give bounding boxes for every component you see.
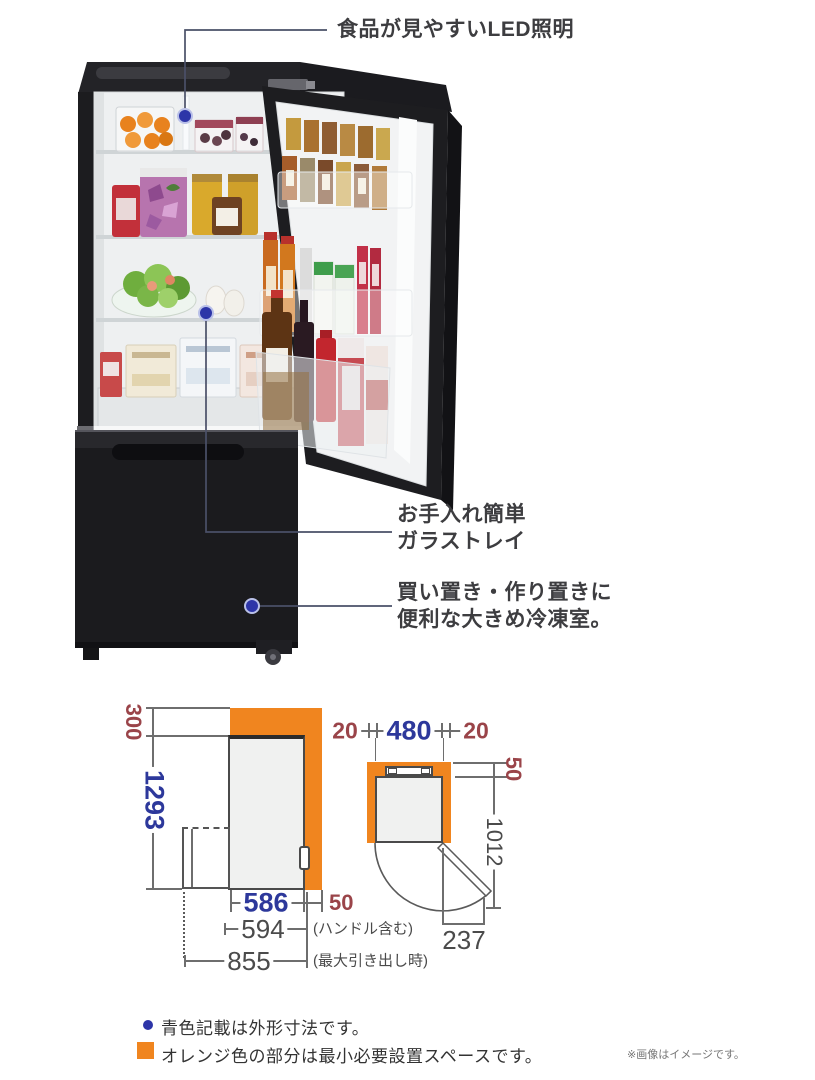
blue-dot-icon — [143, 1020, 153, 1030]
top-orange-left-band — [367, 778, 375, 843]
dim-depth-with-handle: 594 — [238, 916, 287, 942]
dot-led — [178, 109, 192, 123]
dim-depth-drawer-open-note: (最大引き出し時) — [313, 954, 428, 969]
callout-tray-label: お手入れ簡単 ガラストレイ — [397, 501, 526, 555]
orange-swatch-icon — [137, 1042, 154, 1059]
dim-height: 1293 — [141, 767, 168, 833]
callout-led-label: 食品が見やすいLED照明 — [337, 16, 574, 43]
callout-tray-line2: ガラストレイ — [397, 528, 526, 555]
freezer-drawer — [75, 430, 298, 665]
dim-rear-clearance: 50 — [329, 892, 353, 914]
callout-freezer-label: 買い置き・作り置きに 便利な大きめ冷凍室。 — [397, 579, 612, 633]
dim-door-protrusion: 237 — [439, 927, 488, 953]
side-drawer-extended — [182, 827, 230, 889]
fridge-photo — [55, 8, 475, 674]
product-infographic: 食品が見やすいLED照明 お手入れ簡単 ガラストレイ 買い置き・作り置きに 便利… — [0, 0, 815, 1080]
image-disclaimer: ※画像はイメージです。 — [627, 1046, 745, 1062]
callout-freezer-line1: 買い置き・作り置きに — [397, 579, 612, 606]
side-fridge-body — [228, 735, 305, 890]
door-swing-arc — [355, 835, 515, 935]
dim-depth: 586 — [240, 890, 291, 917]
callout-freezer-line2: 便利な大きめ冷凍室。 — [397, 606, 612, 633]
dim-top-clearance: 300 — [122, 701, 144, 744]
dot-glass-tray — [199, 306, 213, 320]
dim-width: 480 — [383, 718, 434, 745]
dim-depth-drawer-open: 855 — [224, 948, 273, 974]
side-door-handle — [299, 846, 310, 870]
legend-blue-note: 青色記載は外形寸法です。 — [161, 1014, 369, 1039]
top-fridge-footprint — [375, 776, 443, 843]
dim-top-rear-clearance: 50 — [502, 754, 524, 784]
top-orange-right-band — [443, 778, 451, 843]
open-door-panel — [438, 843, 491, 896]
freezer-handle — [112, 444, 244, 460]
dim-left-clearance: 20 — [329, 720, 361, 743]
dim-right-clearance: 20 — [460, 720, 492, 743]
callout-tray-line1: お手入れ簡単 — [397, 501, 526, 528]
cabinet-left-side — [78, 92, 94, 434]
dot-freezer — [245, 599, 259, 613]
legend-orange-note: オレンジ色の部分は最小必要設置スペースです。 — [161, 1042, 542, 1067]
